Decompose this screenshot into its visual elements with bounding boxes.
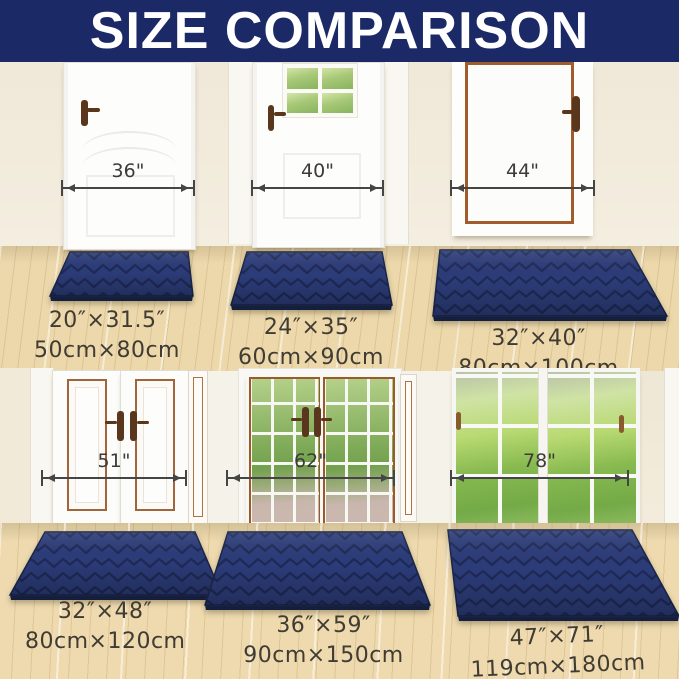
window-pane bbox=[287, 93, 318, 114]
door-center-post bbox=[538, 368, 548, 524]
width-arrow bbox=[63, 187, 193, 189]
mat-size-inches: 24″×35″ bbox=[231, 313, 391, 343]
header-banner: SIZE COMPARISON bbox=[0, 0, 679, 62]
wall-pilaster bbox=[383, 62, 409, 244]
door-panel bbox=[86, 175, 175, 237]
door-sidelight bbox=[400, 374, 417, 522]
door-mat bbox=[46, 248, 198, 308]
mat-size-inches: 36″×59″ bbox=[241, 611, 406, 641]
window-pane bbox=[322, 93, 353, 114]
page-title: SIZE COMPARISON bbox=[90, 1, 589, 61]
door-handle bbox=[456, 412, 461, 430]
wall-pilaster bbox=[664, 368, 679, 525]
wall-strip bbox=[0, 368, 30, 525]
door-handle bbox=[81, 100, 88, 126]
mat-size-label: 36″×59″ 90cm×150cm bbox=[241, 611, 406, 671]
mat-size-inches: 20″×31.5″ bbox=[27, 306, 187, 336]
door-mat bbox=[430, 246, 670, 324]
door-mat bbox=[6, 528, 228, 604]
door-handle-lever bbox=[562, 110, 573, 114]
door-trim-frame bbox=[465, 62, 574, 224]
door-handle bbox=[268, 105, 274, 131]
door-handle-lever bbox=[105, 421, 117, 424]
door-51-left-leaf bbox=[52, 370, 122, 526]
mat-size-label: 20″×31.5″ 50cm×80cm bbox=[27, 306, 187, 366]
mat-size-cm: 90cm×150cm bbox=[241, 641, 406, 671]
door-width-label: 36" bbox=[63, 160, 193, 182]
door-handle bbox=[117, 411, 124, 441]
width-arrow bbox=[452, 477, 627, 479]
door-width-label: 51" bbox=[43, 450, 185, 472]
width-arrow bbox=[452, 187, 593, 189]
door-mat bbox=[201, 528, 434, 614]
mat-size-label: 32″×48″ 80cm×120cm bbox=[25, 597, 185, 657]
door-handle bbox=[619, 415, 624, 433]
door-width-label: 78" bbox=[452, 450, 627, 472]
window-pane bbox=[322, 68, 353, 89]
mat-size-label: 24″×35″ 60cm×90cm bbox=[231, 313, 391, 373]
door-width-label: 62" bbox=[228, 450, 393, 472]
door-44 bbox=[452, 62, 593, 236]
size-comparison-infographic: SIZE COMPARISON 36" 40" 44" bbox=[0, 0, 679, 679]
door-mat bbox=[444, 526, 679, 624]
wall-pilaster bbox=[228, 62, 254, 244]
door-handle bbox=[302, 407, 309, 437]
mat-size-label: 47″×71″ 119cm×180cm bbox=[464, 618, 651, 679]
door-window bbox=[282, 63, 358, 118]
window-pane bbox=[287, 68, 318, 89]
door-handle-lever bbox=[321, 418, 332, 421]
mat-size-cm: 80cm×120cm bbox=[25, 627, 185, 657]
mat-size-cm: 50cm×80cm bbox=[27, 336, 187, 366]
width-arrow bbox=[228, 477, 393, 479]
door-handle-lever bbox=[274, 112, 286, 116]
door-width-label: 40" bbox=[253, 160, 382, 182]
door-width-label: 44" bbox=[452, 160, 593, 182]
width-arrow bbox=[253, 187, 382, 189]
door-51-right-leaf bbox=[120, 370, 190, 526]
door-handle bbox=[572, 96, 580, 132]
door-handle-lever bbox=[87, 108, 100, 112]
door-handle-lever bbox=[291, 418, 302, 421]
door-sidelight bbox=[188, 370, 208, 524]
door-handle bbox=[130, 411, 137, 441]
door-handle bbox=[314, 407, 321, 437]
wall-pilaster bbox=[30, 368, 54, 525]
door-handle-lever bbox=[137, 421, 149, 424]
door-trim-frame bbox=[67, 379, 107, 511]
mat-size-inches: 32″×48″ bbox=[25, 597, 185, 627]
door-40 bbox=[252, 62, 385, 248]
width-arrow bbox=[43, 477, 185, 479]
door-36 bbox=[63, 62, 196, 250]
door-trim-frame bbox=[135, 379, 175, 511]
door-mat bbox=[227, 248, 397, 314]
mat-size-inches: 32″×40″ bbox=[446, 324, 631, 354]
